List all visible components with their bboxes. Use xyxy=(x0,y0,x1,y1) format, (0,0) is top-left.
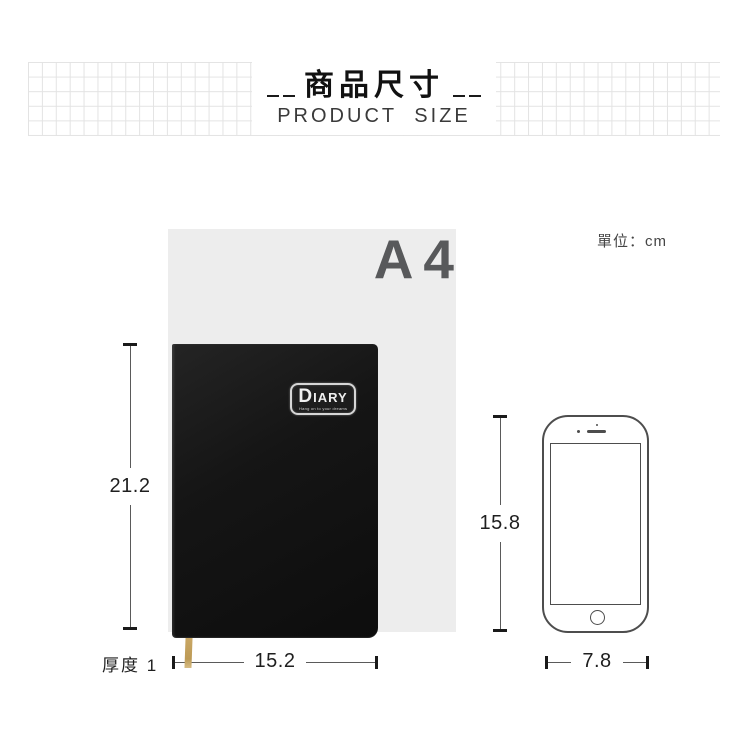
diary-logo-badge: DIARY Hang on to your dreams xyxy=(290,383,356,415)
phone-outline-icon xyxy=(542,415,649,633)
phone-speaker-line xyxy=(587,430,606,433)
header-title-box: 商品尺寸 PRODUCT SIZE xyxy=(252,62,496,135)
phone-width-value: 7.8 xyxy=(582,650,611,673)
diary-width-value: 15.2 xyxy=(255,650,296,673)
ribbon-bookmark xyxy=(184,638,192,668)
dimension-diary-width: 15.2 xyxy=(172,654,378,670)
title-underline-right xyxy=(453,95,481,97)
dimension-cap xyxy=(646,656,649,669)
unit-label: 單位：cm xyxy=(597,230,667,251)
dimension-cap xyxy=(375,656,378,669)
title-underline-left xyxy=(267,95,295,97)
dimension-cap xyxy=(123,627,137,630)
diary-height-value: 21.2 xyxy=(110,475,151,498)
phone-home-button xyxy=(590,610,605,625)
thickness-label: 厚度 1 xyxy=(102,651,158,676)
header-grid-band: 商品尺寸 PRODUCT SIZE xyxy=(28,62,720,136)
product-size-diagram: 商品尺寸 PRODUCT SIZE A4 單位：cm DIARY Hang on… xyxy=(0,0,750,750)
diary-logo-text: DIARY xyxy=(298,387,347,406)
diary-cover: DIARY Hang on to your dreams xyxy=(172,344,378,638)
page-title: 商品尺寸 xyxy=(304,69,444,102)
title-row: 商品尺寸 xyxy=(267,69,481,102)
a4-size-label: A4 xyxy=(374,232,464,287)
phone-camera-dot xyxy=(577,430,580,433)
phone-height-value: 15.8 xyxy=(480,512,521,535)
dimension-phone-height: 15.8 xyxy=(480,415,520,632)
phone-screen xyxy=(550,443,641,605)
page-subtitle: PRODUCT SIZE xyxy=(277,105,471,128)
dimension-cap xyxy=(493,629,507,632)
diary-logo-tagline: Hang on to your dreams xyxy=(299,407,347,411)
phone-sensor-dot xyxy=(596,424,598,426)
dimension-diary-height: 21.2 xyxy=(110,343,150,630)
dimension-phone-width: 7.8 xyxy=(545,654,649,670)
